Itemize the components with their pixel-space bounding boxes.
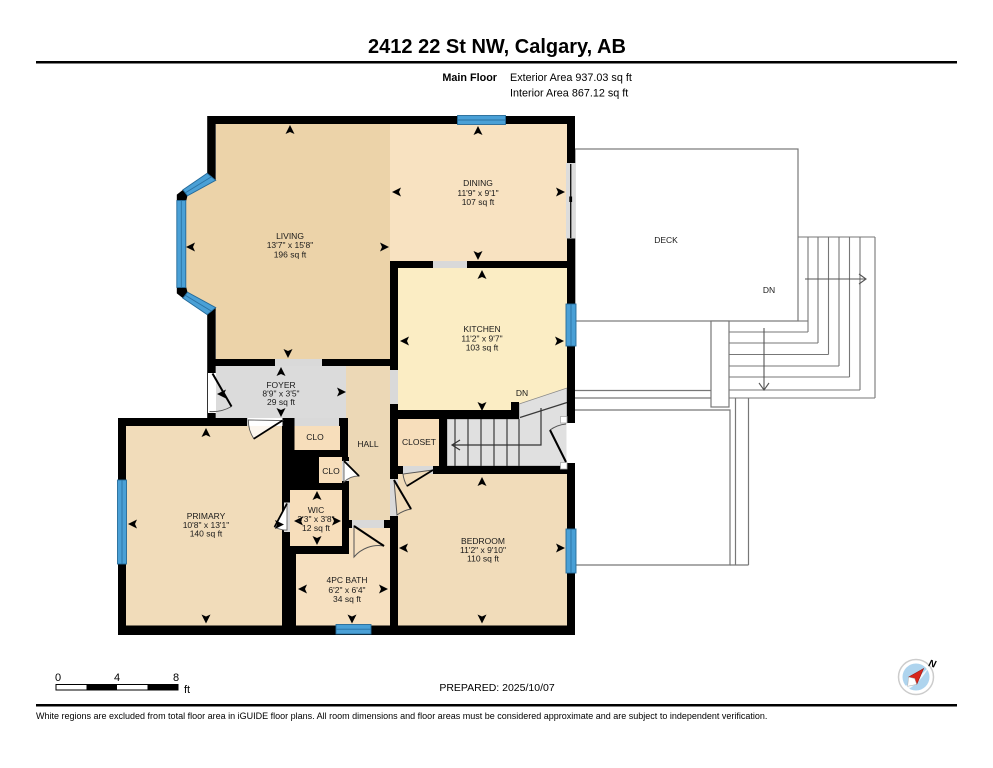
svg-text:CLO: CLO bbox=[322, 466, 340, 476]
svg-text:White regions are excluded fro: White regions are excluded from total fl… bbox=[36, 711, 767, 721]
svg-text:4PC BATH: 4PC BATH bbox=[327, 575, 368, 585]
svg-text:DN: DN bbox=[763, 285, 775, 295]
svg-text:196 sq ft: 196 sq ft bbox=[274, 250, 307, 260]
svg-text:Interior Area 867.12 sq ft: Interior Area 867.12 sq ft bbox=[510, 88, 628, 100]
svg-text:DINING: DINING bbox=[463, 178, 493, 188]
svg-text:CLO: CLO bbox=[306, 432, 324, 442]
svg-text:PREPARED: 2025/10/07: PREPARED: 2025/10/07 bbox=[439, 682, 555, 694]
svg-text:DECK: DECK bbox=[654, 235, 678, 245]
svg-text:12 sq ft: 12 sq ft bbox=[302, 523, 331, 533]
svg-text:KITCHEN: KITCHEN bbox=[463, 324, 500, 334]
svg-text:DN: DN bbox=[516, 388, 528, 398]
svg-text:8: 8 bbox=[173, 672, 179, 684]
svg-text:CLOSET: CLOSET bbox=[402, 437, 436, 447]
svg-text:0: 0 bbox=[55, 672, 61, 684]
svg-text:ft: ft bbox=[184, 684, 190, 696]
svg-text:103 sq ft: 103 sq ft bbox=[466, 343, 499, 353]
svg-text:HALL: HALL bbox=[357, 439, 379, 449]
svg-text:107 sq ft: 107 sq ft bbox=[462, 197, 495, 207]
svg-text:2412 22 St NW, Calgary, AB: 2412 22 St NW, Calgary, AB bbox=[368, 36, 626, 58]
svg-text:29 sq ft: 29 sq ft bbox=[267, 397, 296, 407]
svg-text:Main Floor: Main Floor bbox=[442, 72, 497, 84]
svg-text:4: 4 bbox=[114, 672, 120, 684]
svg-text:Exterior Area 937.03 sq ft: Exterior Area 937.03 sq ft bbox=[510, 72, 632, 84]
svg-text:34 sq ft: 34 sq ft bbox=[333, 594, 362, 604]
svg-text:110 sq ft: 110 sq ft bbox=[467, 554, 500, 564]
svg-text:140 sq ft: 140 sq ft bbox=[190, 529, 223, 539]
